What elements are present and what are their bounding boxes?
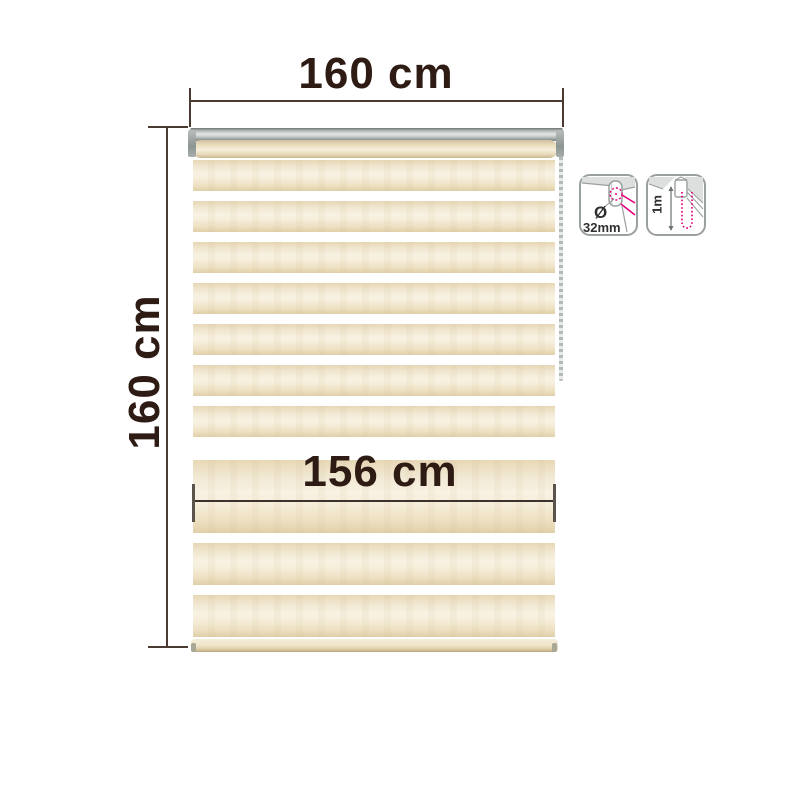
fabric-width-tick-right — [553, 484, 556, 522]
bottom-bar-endcap-left — [191, 643, 196, 652]
blind-pull-chain — [559, 145, 563, 381]
headrail-endcap-right — [556, 130, 564, 157]
fabric-stripe — [193, 283, 555, 314]
bottom-bar-endcap-right — [552, 643, 557, 652]
fabric-stripe — [193, 406, 555, 437]
fabric-width-dimension-line — [193, 500, 556, 502]
chain-length-value: 1m — [650, 195, 665, 215]
tube-diameter-value: 32mm — [583, 220, 621, 235]
blind-roll-tube — [192, 140, 558, 158]
fabric-stripe — [193, 201, 555, 232]
top-width-label: 160 cm — [298, 52, 453, 96]
fabric-stripe — [193, 324, 555, 355]
fabric-stripe — [193, 365, 555, 396]
fabric-stripe — [193, 160, 555, 191]
fabric-width-tick-left — [192, 484, 195, 522]
fabric-stripe — [193, 595, 555, 637]
blind-bottom-bar — [191, 639, 558, 652]
top-width-dimension-line — [190, 100, 563, 102]
top-width-tick-right — [562, 88, 564, 127]
product-dimension-diagram: 160 cm 160 cm 156 cm Ø 32mm — [0, 0, 800, 800]
top-width-tick-left — [189, 88, 191, 127]
headrail-endcap-left — [188, 130, 196, 157]
side-height-label: 160 cm — [123, 294, 167, 449]
chain-length-icon: 1m — [646, 174, 706, 236]
side-height-tick-bottom — [148, 646, 188, 648]
fabric-width-label: 156 cm — [302, 450, 457, 494]
tube-diameter-icon: Ø 32mm — [579, 174, 638, 236]
fabric-stripe — [193, 543, 555, 585]
side-height-tick-top — [148, 126, 188, 128]
fabric-stripe — [193, 242, 555, 273]
